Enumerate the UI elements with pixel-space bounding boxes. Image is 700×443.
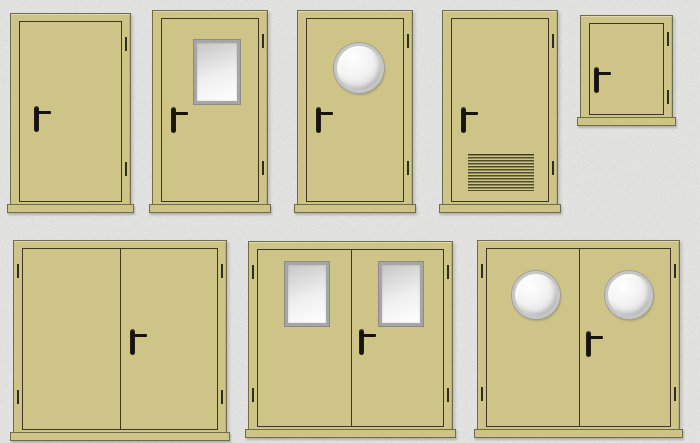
access-hatch[interactable] bbox=[580, 15, 673, 126]
handle-lever bbox=[38, 111, 51, 114]
hinge-icon bbox=[125, 37, 127, 51]
porthole-window bbox=[605, 271, 653, 319]
door-leaf bbox=[22, 248, 218, 430]
hinge-icon bbox=[221, 264, 223, 278]
window-glazing bbox=[194, 40, 240, 104]
hinge-icon bbox=[667, 32, 669, 46]
hinge-icon bbox=[125, 162, 127, 176]
hinge-icon bbox=[262, 34, 264, 48]
door-handle-icon bbox=[594, 67, 612, 94]
door-leaf bbox=[161, 18, 259, 202]
door-handle-icon bbox=[130, 329, 148, 356]
hinge-icon bbox=[252, 388, 254, 402]
handle-backplate bbox=[461, 107, 466, 133]
door-frame bbox=[580, 15, 673, 120]
meeting-stile-line bbox=[579, 249, 580, 426]
hinge-icon bbox=[552, 34, 554, 48]
hinge-icon bbox=[481, 264, 483, 278]
handle-backplate bbox=[34, 106, 39, 132]
hinge-icon bbox=[447, 265, 449, 279]
hinge-icon bbox=[447, 388, 449, 402]
door-double-plain[interactable] bbox=[13, 240, 227, 441]
door-sill bbox=[10, 432, 230, 441]
hinge-icon bbox=[674, 264, 676, 278]
door-handle-icon bbox=[316, 107, 334, 134]
hinge-icon bbox=[407, 161, 409, 175]
meeting-stile-line bbox=[351, 250, 352, 426]
handle-lever bbox=[590, 336, 603, 339]
door-frame bbox=[248, 241, 453, 432]
handle-lever bbox=[598, 72, 611, 75]
door-sill bbox=[294, 204, 416, 213]
door-handle-icon bbox=[461, 107, 479, 134]
handle-backplate bbox=[359, 329, 364, 355]
hinge-icon bbox=[221, 390, 223, 404]
door-single-porthole[interactable] bbox=[297, 10, 413, 213]
hinge-icon bbox=[481, 387, 483, 401]
door-handle-icon bbox=[34, 106, 52, 133]
door-frame bbox=[152, 10, 268, 207]
handle-backplate bbox=[586, 331, 591, 357]
door-double-glazed[interactable] bbox=[248, 241, 453, 438]
window-glazing bbox=[285, 262, 329, 326]
handle-lever bbox=[134, 334, 147, 337]
door-sill bbox=[7, 204, 134, 213]
door-leaf bbox=[257, 249, 444, 427]
handle-backplate bbox=[594, 67, 599, 93]
handle-backplate bbox=[171, 107, 176, 133]
handle-lever bbox=[175, 112, 188, 115]
hinge-icon bbox=[17, 264, 19, 278]
door-single-vented[interactable] bbox=[442, 10, 558, 213]
hinge-icon bbox=[674, 387, 676, 401]
door-sill bbox=[149, 204, 271, 213]
handle-lever bbox=[465, 112, 478, 115]
handle-lever bbox=[320, 112, 333, 115]
door-sill bbox=[577, 117, 676, 126]
door-frame bbox=[442, 10, 558, 207]
hinge-icon bbox=[667, 90, 669, 104]
porthole-window bbox=[334, 43, 384, 93]
hinge-icon bbox=[552, 161, 554, 175]
porthole-window bbox=[512, 271, 560, 319]
handle-lever bbox=[363, 334, 376, 337]
hinge-icon bbox=[252, 265, 254, 279]
ventilation-grille-icon bbox=[468, 154, 534, 191]
window-glazing bbox=[379, 262, 423, 326]
door-single-glazed[interactable] bbox=[152, 10, 268, 213]
doors-catalog-canvas bbox=[0, 0, 700, 443]
hinge-icon bbox=[407, 34, 409, 48]
handle-backplate bbox=[130, 329, 135, 355]
hinge-icon bbox=[17, 390, 19, 404]
door-sill bbox=[474, 429, 683, 438]
door-leaf bbox=[451, 18, 549, 202]
door-frame bbox=[13, 240, 227, 435]
door-frame bbox=[297, 10, 413, 207]
door-leaf bbox=[486, 248, 671, 427]
door-sill bbox=[439, 204, 561, 213]
hinge-icon bbox=[262, 161, 264, 175]
door-sill bbox=[245, 429, 456, 438]
door-double-porthole[interactable] bbox=[477, 240, 680, 438]
door-single-plain[interactable] bbox=[10, 13, 131, 213]
meeting-stile-line bbox=[120, 249, 121, 429]
door-leaf bbox=[306, 18, 404, 202]
door-handle-icon bbox=[586, 331, 604, 358]
door-handle-icon bbox=[359, 329, 377, 356]
door-frame bbox=[10, 13, 131, 207]
door-leaf bbox=[589, 23, 664, 115]
door-frame bbox=[477, 240, 680, 432]
handle-backplate bbox=[316, 107, 321, 133]
door-handle-icon bbox=[171, 107, 189, 134]
door-leaf bbox=[19, 21, 122, 202]
